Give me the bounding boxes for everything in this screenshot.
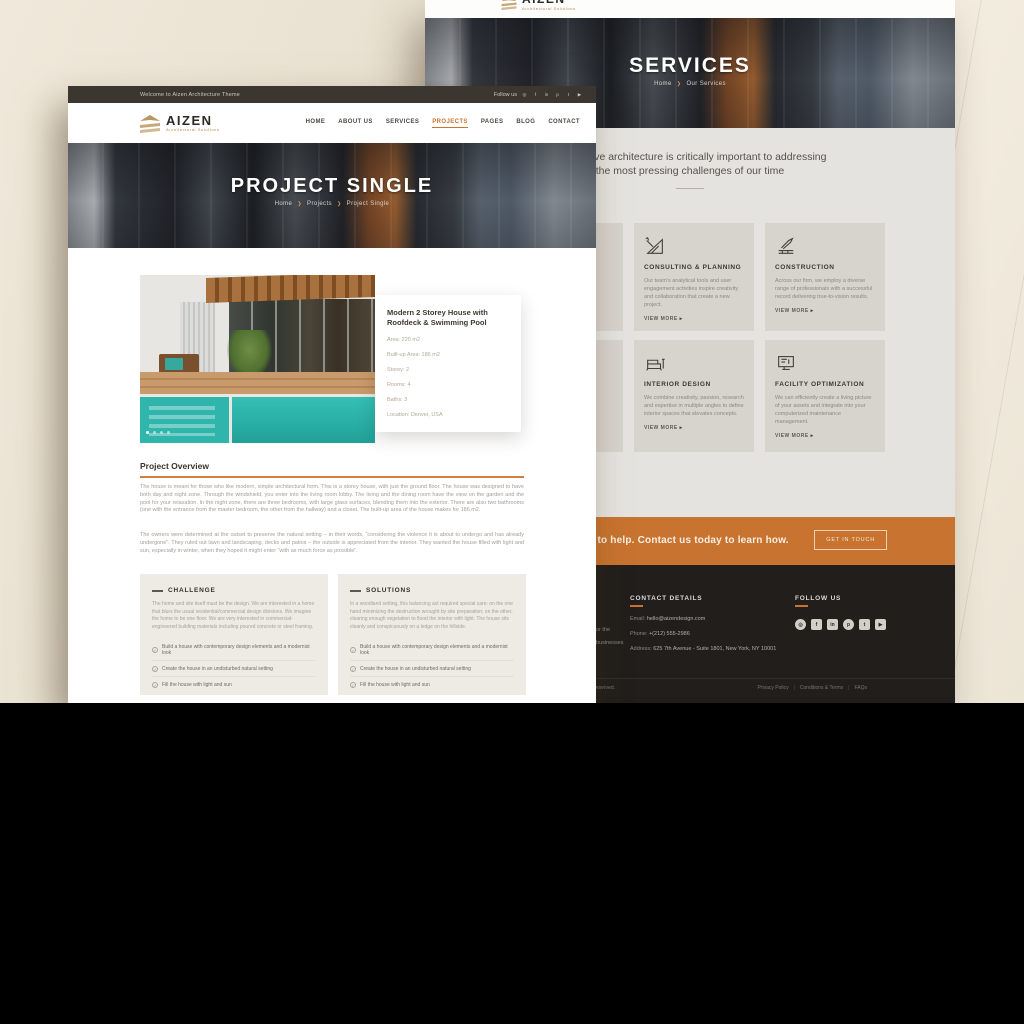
aizen-logo-icon [138, 113, 162, 133]
slider-dot[interactable] [160, 431, 163, 434]
check-icon: ✓ [350, 682, 356, 688]
challenge-box: CHALLENGE The home and site itself must … [140, 574, 328, 695]
check-icon: ✓ [152, 666, 158, 672]
welcome-text: Welcome to Aizen Architecture Theme [140, 92, 240, 98]
services-header: AIZEN Architectural Solutions [425, 0, 955, 18]
overview-divider [140, 476, 524, 478]
solutions-box: SOLUTIONS In a woodland setting, this ba… [338, 574, 526, 695]
footer-contact-column: CONTACT DETAILS Email: hello@aizendesign… [630, 595, 776, 652]
breadcrumb-home-link[interactable]: Home [654, 81, 672, 87]
contact-phone[interactable]: Phone: +(212) 555-2986 [630, 631, 776, 637]
dash-icon [350, 590, 361, 592]
solutions-item: ✓Fill the house with light and sun [350, 676, 514, 692]
project-info-card: Modern 2 Storey House with Roofdeck & Sw… [375, 295, 521, 432]
project-content: Modern 2 Storey House with Roofdeck & Sw… [68, 248, 596, 703]
follow-us-label: Follow us [494, 92, 517, 98]
linkedin-icon[interactable]: in [827, 619, 838, 630]
nav-blog[interactable]: BLOG [516, 119, 535, 128]
separator: | [794, 685, 795, 691]
service-desc: We can efficiently create a living pictu… [775, 394, 875, 426]
breadcrumb-current: Project Single [347, 201, 390, 207]
slider-dot[interactable] [153, 431, 156, 434]
separator: | [848, 685, 849, 691]
pinterest-icon[interactable]: p [554, 91, 561, 98]
solutions-title: SOLUTIONS [366, 587, 411, 594]
nav-home[interactable]: HOME [306, 119, 326, 128]
trowel-bricks-icon [775, 235, 797, 257]
aizen-logo[interactable]: AIZEN Architectural Solutions [500, 0, 576, 11]
service-title: CONSULTING & PLANNING [644, 264, 744, 271]
service-title: INTERIOR DESIGN [644, 381, 744, 388]
logo-name: AIZEN [166, 114, 220, 127]
logo-tagline: Architectural Solutions [522, 6, 576, 11]
detail-area: Area: 220 m2 [387, 337, 509, 343]
footer-follow-column: FOLLOW US ◎ f in p t ▶ [795, 595, 886, 630]
view-more-link[interactable]: VIEW MORE▸ [644, 425, 744, 431]
contact-email[interactable]: Email: hello@aizendesign.com [630, 616, 776, 622]
slider-dot[interactable] [146, 431, 149, 434]
page-title: PROJECT SINGLE [68, 143, 596, 198]
desktop-background: AIZEN Architectural Solutions SERVICES H… [0, 0, 1024, 703]
detail-rooms: Rooms: 4 [387, 382, 509, 388]
view-more-link[interactable]: VIEW MORE▸ [775, 308, 875, 314]
footer-about-fragment: businesses [596, 640, 624, 646]
challenge-title: CHALLENGE [168, 587, 216, 594]
project-title: Modern 2 Storey House with Roofdeck & Sw… [387, 308, 509, 328]
breadcrumb-home-link[interactable]: Home [275, 201, 293, 207]
footer-links: Privacy Policy | Conditions & Terms | FA… [757, 685, 867, 691]
blueprint-monitor-icon [775, 352, 797, 374]
detail-storey: Storey: 2 [387, 367, 509, 373]
youtube-icon[interactable]: ▶ [875, 619, 886, 630]
project-photo[interactable] [140, 275, 375, 443]
view-more-link[interactable]: VIEW MORE▸ [775, 433, 875, 439]
linkedin-icon[interactable]: in [543, 91, 550, 98]
youtube-icon[interactable]: ▶ [576, 91, 583, 98]
arrow-right-icon: ▸ [811, 308, 814, 314]
dash-icon [152, 590, 163, 592]
contact-address: Address: 625 7th Avenue - Suite 1801, Ne… [630, 646, 776, 652]
breadcrumb-projects-link[interactable]: Projects [307, 201, 332, 207]
pinterest-icon[interactable]: p [843, 619, 854, 630]
service-title: FACILITY OPTIMIZATION [775, 381, 875, 388]
challenge-item: ✓Build a house with contemporary design … [152, 639, 316, 660]
project-hero: PROJECT SINGLE Home ❯ Projects ❯ Project… [68, 143, 596, 248]
intro-divider [676, 188, 704, 189]
service-title: CONSTRUCTION [775, 264, 875, 271]
slider-dot[interactable] [167, 431, 170, 434]
service-desc: Our team's analytical tools and user eng… [644, 277, 744, 309]
project-single-page: Welcome to Aizen Architecture Theme Foll… [68, 86, 596, 703]
breadcrumb: Home ❯ Projects ❯ Project Single [68, 201, 596, 207]
breadcrumb-current: Our Services [686, 81, 725, 87]
view-more-link[interactable]: VIEW MORE▸ [644, 316, 744, 322]
page-title: SERVICES [425, 18, 955, 78]
overview-heading: Project Overview [140, 461, 209, 471]
follow-heading: FOLLOW US [795, 595, 886, 607]
service-card-facility[interactable]: FACILITY OPTIMIZATION We can efficiently… [765, 340, 885, 452]
instagram-icon[interactable]: ◎ [521, 91, 528, 98]
overview-paragraph-2: The owners were determined at the outset… [140, 532, 524, 555]
facebook-icon[interactable]: f [811, 619, 822, 630]
solutions-desc: In a woodland setting, this balancing ac… [350, 601, 514, 631]
aizen-logo[interactable]: AIZEN Architectural Solutions [138, 113, 220, 133]
get-in-touch-button[interactable]: GET IN TOUCH [814, 530, 887, 550]
challenge-desc: The home and site itself must be the des… [152, 601, 316, 631]
nav-services[interactable]: SERVICES [386, 119, 419, 128]
sofa-icon [644, 352, 666, 374]
arrow-right-icon: ▸ [680, 316, 683, 322]
chevron-right-icon: ❯ [337, 201, 342, 207]
ruler-pencil-icon [644, 235, 666, 257]
detail-baths: Baths: 3 [387, 397, 509, 403]
challenge-item: ✓Fill the house with light and sun [152, 676, 316, 692]
check-icon: ✓ [350, 647, 356, 653]
solutions-item: ✓Build a house with contemporary design … [350, 639, 514, 660]
nav-projects-active[interactable]: PROJECTS [432, 119, 468, 128]
contact-heading: CONTACT DETAILS [630, 595, 776, 607]
main-nav: HOME ABOUT US SERVICES PROJECTS PAGES BL… [306, 119, 580, 128]
twitter-icon[interactable]: t [859, 619, 870, 630]
footer-about-fragment: or the [596, 627, 610, 633]
detail-built-up-area: Built-up Area: 186 m2 [387, 352, 509, 358]
privacy-policy-link[interactable]: Privacy Policy [757, 685, 788, 691]
service-card-consulting[interactable]: CONSULTING & PLANNING Our team's analyti… [634, 223, 754, 331]
challenge-item: ✓Create the house in an undisturbed natu… [152, 660, 316, 676]
nav-contact[interactable]: CONTACT [548, 119, 580, 128]
detail-location: Location: Denver, USA [387, 412, 509, 418]
solutions-item: ✓Create the house in an undisturbed natu… [350, 660, 514, 676]
aizen-logo-icon [500, 0, 518, 10]
chevron-right-icon: ❯ [677, 81, 682, 87]
facebook-icon[interactable]: f [532, 91, 539, 98]
chevron-right-icon: ❯ [297, 201, 302, 207]
service-card-interior[interactable]: INTERIOR DESIGN We combine creativity, p… [634, 340, 754, 452]
nav-about-us[interactable]: ABOUT US [338, 119, 373, 128]
check-icon: ✓ [350, 666, 356, 672]
check-icon: ✓ [152, 647, 158, 653]
service-card-construction[interactable]: CONSTRUCTION Across our firm, we employ … [765, 223, 885, 331]
twitter-icon[interactable]: t [565, 91, 572, 98]
top-bar: Welcome to Aizen Architecture Theme Foll… [68, 86, 596, 103]
slider-dots [146, 431, 170, 434]
arrow-right-icon: ▸ [680, 425, 683, 431]
overview-paragraph-1: The house is meant for those who like mo… [140, 484, 524, 515]
arrow-right-icon: ▸ [811, 433, 814, 439]
logo-tagline: Architectural Solutions [166, 127, 220, 132]
service-desc: Across our firm, we employ a diverse ran… [775, 277, 875, 301]
nav-pages[interactable]: PAGES [481, 119, 504, 128]
main-header: AIZEN Architectural Solutions HOME ABOUT… [68, 103, 596, 143]
check-icon: ✓ [152, 682, 158, 688]
service-desc: We combine creativity, passion, research… [644, 394, 744, 418]
terms-link[interactable]: Conditions & Terms [800, 685, 843, 691]
breadcrumb: Home ❯ Our Services [425, 81, 955, 87]
instagram-icon[interactable]: ◎ [795, 619, 806, 630]
faq-link[interactable]: FAQs [854, 685, 867, 691]
